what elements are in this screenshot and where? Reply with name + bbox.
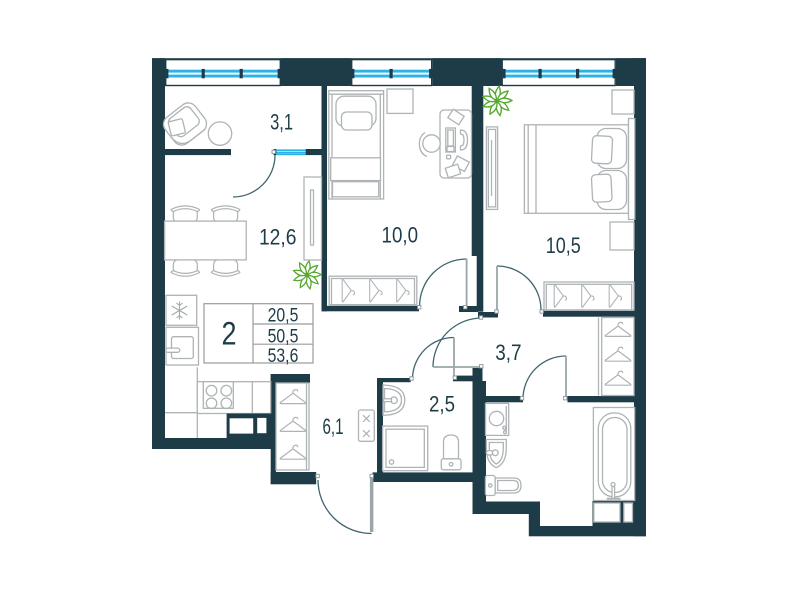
svg-text:10,0: 10,0: [382, 222, 419, 247]
svg-text:3,1: 3,1: [270, 110, 293, 135]
svg-text:20,5: 20,5: [268, 306, 299, 327]
svg-text:53,6: 53,6: [268, 346, 299, 367]
svg-text:6,1: 6,1: [323, 414, 344, 439]
svg-text:12,6: 12,6: [259, 224, 297, 249]
svg-text:50,5: 50,5: [268, 326, 299, 347]
svg-text:10,5: 10,5: [546, 233, 581, 258]
svg-text:3,7: 3,7: [495, 340, 521, 365]
svg-text:2,5: 2,5: [429, 392, 455, 417]
svg-text:2: 2: [222, 315, 237, 351]
